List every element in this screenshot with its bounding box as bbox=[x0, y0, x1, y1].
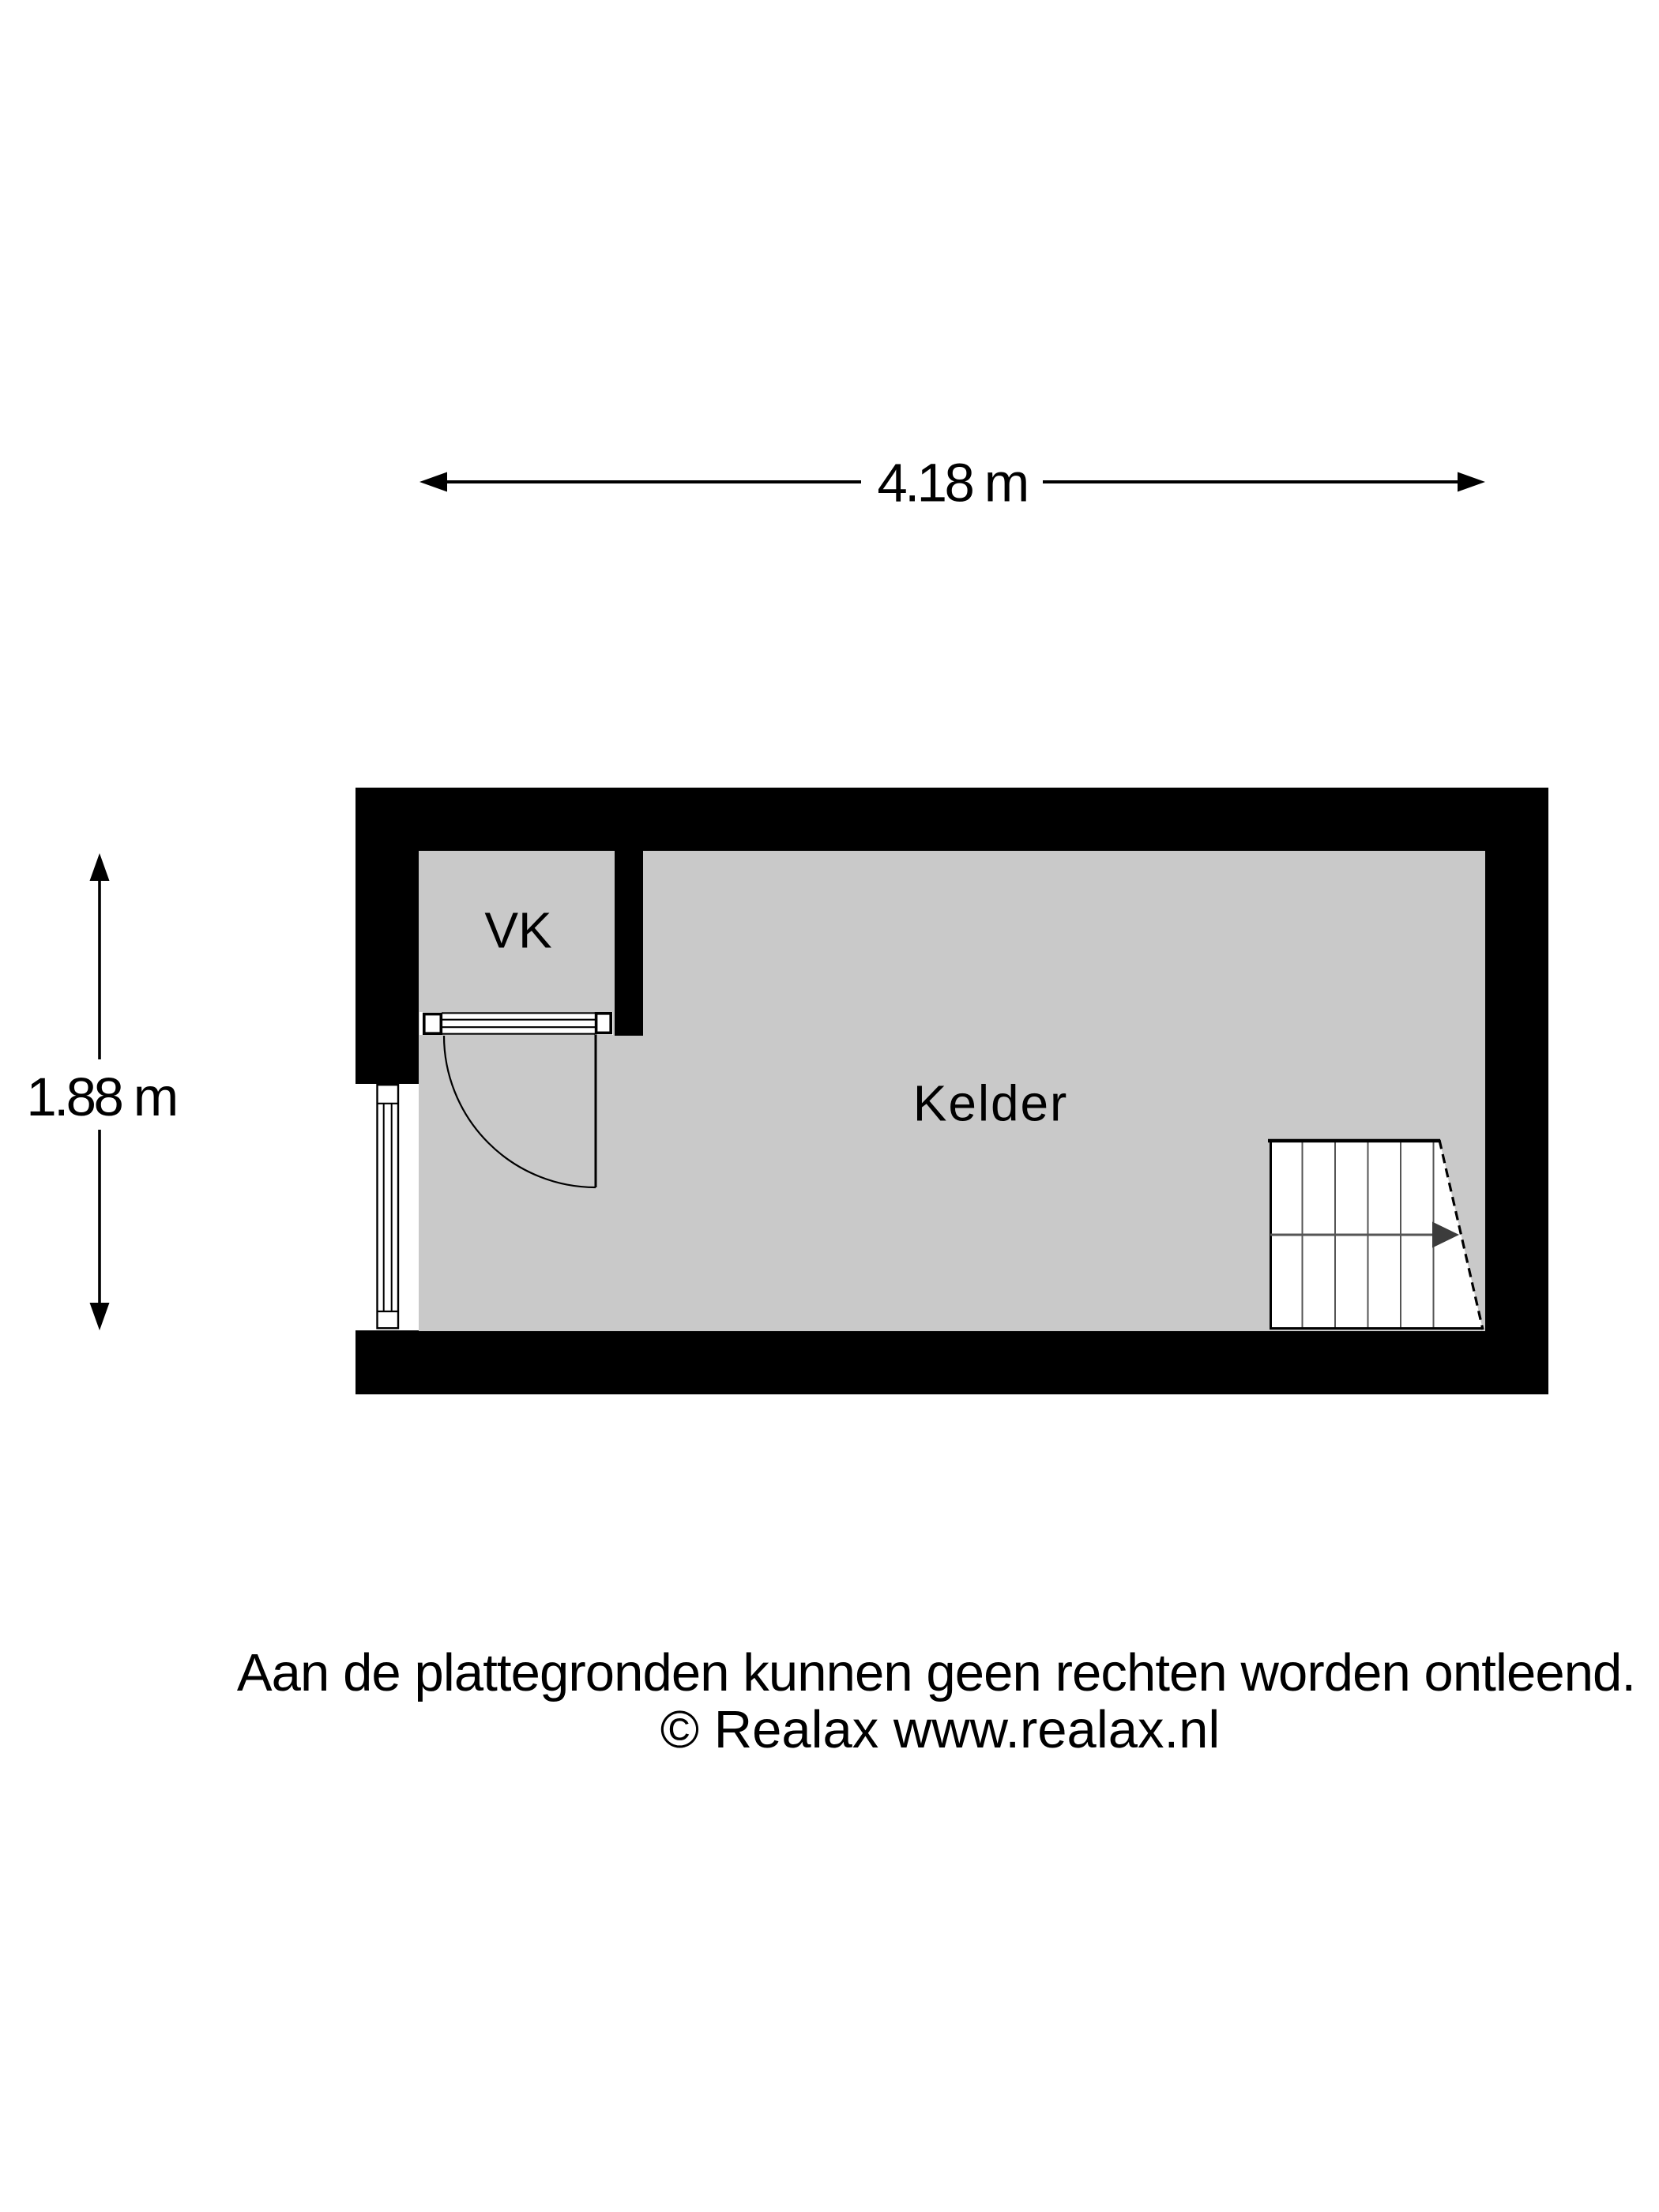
svg-text:© Realax www.realax.nl: © Realax www.realax.nl bbox=[660, 1700, 1220, 1759]
svg-text:VK: VK bbox=[484, 902, 551, 959]
svg-text:1.88 m: 1.88 m bbox=[26, 1066, 175, 1127]
svg-text:4.18 m: 4.18 m bbox=[877, 453, 1026, 513]
svg-text:Aan de plattegronden kunnen ge: Aan de plattegronden kunnen geen rechten… bbox=[237, 1643, 1635, 1702]
svg-text:Kelder: Kelder bbox=[913, 1075, 1068, 1132]
